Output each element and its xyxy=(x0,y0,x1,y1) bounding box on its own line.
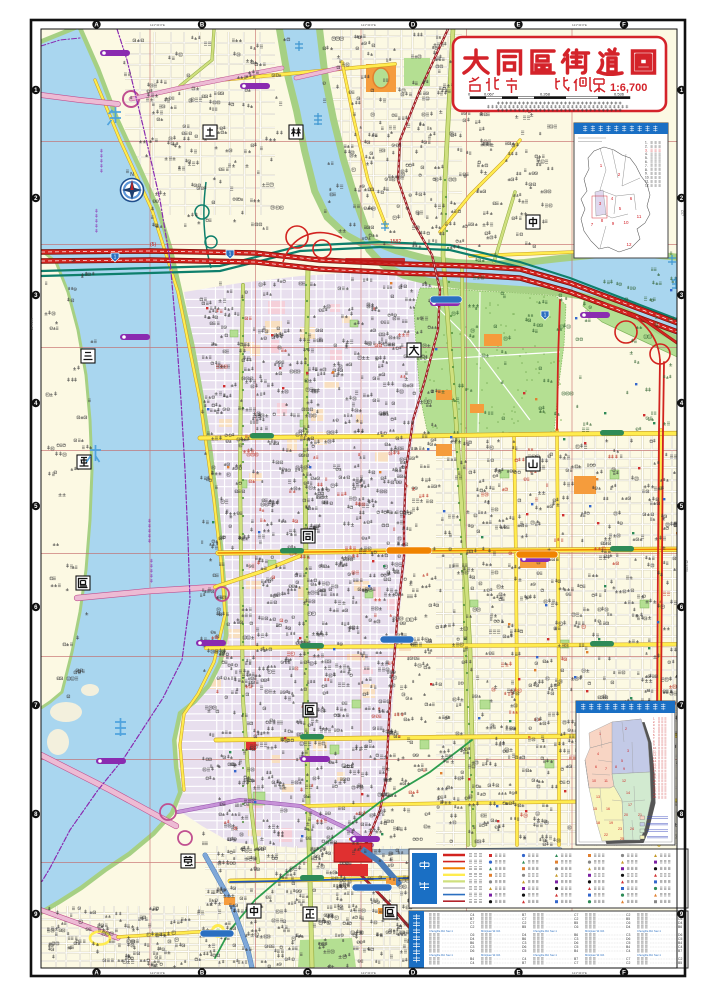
svg-text:0.268: 0.268 xyxy=(540,92,551,97)
svg-text:C07: C07 xyxy=(680,210,684,216)
svg-text:6: 6 xyxy=(595,765,597,769)
svg-text:1: 1 xyxy=(229,252,232,258)
svg-text:18: 18 xyxy=(596,821,600,825)
svg-text:11: 11 xyxy=(637,214,642,219)
svg-text:1: 1 xyxy=(599,732,601,736)
svg-text:ChengDe Rd. Sec.1: ChengDe Rd. Sec.1 xyxy=(637,929,661,933)
svg-text:10: 10 xyxy=(592,779,596,783)
svg-text:9: 9 xyxy=(623,767,625,771)
svg-text:C2: C2 xyxy=(470,925,474,929)
svg-text:25: 25 xyxy=(620,837,624,841)
svg-text:C6: C6 xyxy=(574,925,578,929)
svg-text:F: F xyxy=(622,23,626,29)
svg-text:3: 3 xyxy=(627,749,629,753)
svg-text:15: 15 xyxy=(593,807,597,811)
svg-text:10: 10 xyxy=(623,220,629,225)
svg-text:B: B xyxy=(200,971,205,977)
svg-text:22: 22 xyxy=(604,833,608,837)
svg-text:ChengDe Rd. Sec.1: ChengDe Rd. Sec.1 xyxy=(429,953,453,957)
svg-text:19: 19 xyxy=(609,821,613,825)
svg-text:B7: B7 xyxy=(522,961,526,965)
svg-text:B4: B4 xyxy=(574,949,578,953)
svg-text:11: 11 xyxy=(604,779,608,783)
svg-text:B: B xyxy=(200,23,205,29)
svg-text:B6: B6 xyxy=(678,925,682,929)
svg-text:ChengDe Rd. Sec.1: ChengDe Rd. Sec.1 xyxy=(429,929,453,933)
svg-text:12.: 12. xyxy=(645,183,650,187)
svg-text:5: 5 xyxy=(621,759,623,763)
svg-text:C: C xyxy=(305,23,310,29)
svg-text:ChengDe Rd. Sec.1: ChengDe Rd. Sec.1 xyxy=(533,953,557,957)
svg-text:13: 13 xyxy=(596,795,600,799)
svg-text:12: 12 xyxy=(622,779,626,783)
svg-text:2: 2 xyxy=(625,727,627,731)
svg-text:E: E xyxy=(516,971,520,977)
svg-text:MinQuan W. Rd.: MinQuan W. Rd. xyxy=(585,929,605,933)
svg-text:121°31'0"E: 121°31'0"E xyxy=(572,23,587,27)
svg-text:ChengDe Rd. Sec.1: ChengDe Rd. Sec.1 xyxy=(637,953,661,957)
svg-text:D: D xyxy=(411,23,416,29)
svg-text:121°31'0"E: 121°31'0"E xyxy=(361,23,376,27)
svg-text:A: A xyxy=(94,971,99,977)
svg-text:C4: C4 xyxy=(470,961,474,965)
svg-text:121°31'0"E: 121°31'0"E xyxy=(150,23,165,27)
svg-text:121°31'0"E: 121°31'0"E xyxy=(150,971,165,975)
svg-text:A: A xyxy=(94,23,99,29)
svg-text:C7: C7 xyxy=(574,961,578,965)
svg-text:25.: 25. xyxy=(653,795,657,799)
svg-text:12: 12 xyxy=(626,242,632,247)
svg-text:(5): (5) xyxy=(150,242,156,248)
svg-text:0.536: 0.536 xyxy=(614,92,625,97)
svg-text:4: 4 xyxy=(597,752,599,756)
svg-text:0.067: 0.067 xyxy=(484,92,495,97)
svg-text:16: 16 xyxy=(606,807,610,811)
svg-text:20: 20 xyxy=(624,813,628,817)
svg-text:14: 14 xyxy=(626,791,630,795)
svg-text:25°3'0"N: 25°3'0"N xyxy=(685,560,689,572)
svg-text:MinQuan W. Rd.: MinQuan W. Rd. xyxy=(481,929,501,933)
svg-text:1: 1 xyxy=(544,313,547,319)
svg-text:24: 24 xyxy=(630,827,634,831)
svg-text:25°4'0"N: 25°4'0"N xyxy=(30,318,34,330)
svg-text:MinQuan W. Rd.: MinQuan W. Rd. xyxy=(585,953,605,957)
svg-text:D: D xyxy=(411,971,416,977)
svg-text:B5: B5 xyxy=(522,925,526,929)
svg-text:8: 8 xyxy=(615,765,617,769)
svg-text:D6: D6 xyxy=(470,949,474,953)
svg-text:C: C xyxy=(305,971,310,977)
svg-text:121°31'0"E: 121°31'0"E xyxy=(361,971,376,975)
svg-text:17: 17 xyxy=(628,803,632,807)
svg-text:1582: 1582 xyxy=(390,239,401,245)
svg-text:23: 23 xyxy=(618,827,622,831)
svg-text:121°31'0"E: 121°31'0"E xyxy=(572,971,587,975)
svg-text:F: F xyxy=(622,971,626,977)
svg-text:MinQuan W. Rd.: MinQuan W. Rd. xyxy=(481,953,501,957)
svg-text:7: 7 xyxy=(605,767,607,771)
svg-text:C4: C4 xyxy=(626,949,630,953)
svg-text:B7: B7 xyxy=(678,949,682,953)
svg-text:C2: C2 xyxy=(626,961,630,965)
svg-text:N: N xyxy=(130,172,134,178)
svg-text:1: 1 xyxy=(114,255,117,261)
svg-text:C5: C5 xyxy=(522,949,526,953)
svg-text:E: E xyxy=(516,23,520,29)
svg-text:ChengDe Rd. Sec.1: ChengDe Rd. Sec.1 xyxy=(533,929,557,933)
svg-text:B5: B5 xyxy=(678,961,682,965)
svg-text:D4: D4 xyxy=(626,925,630,929)
